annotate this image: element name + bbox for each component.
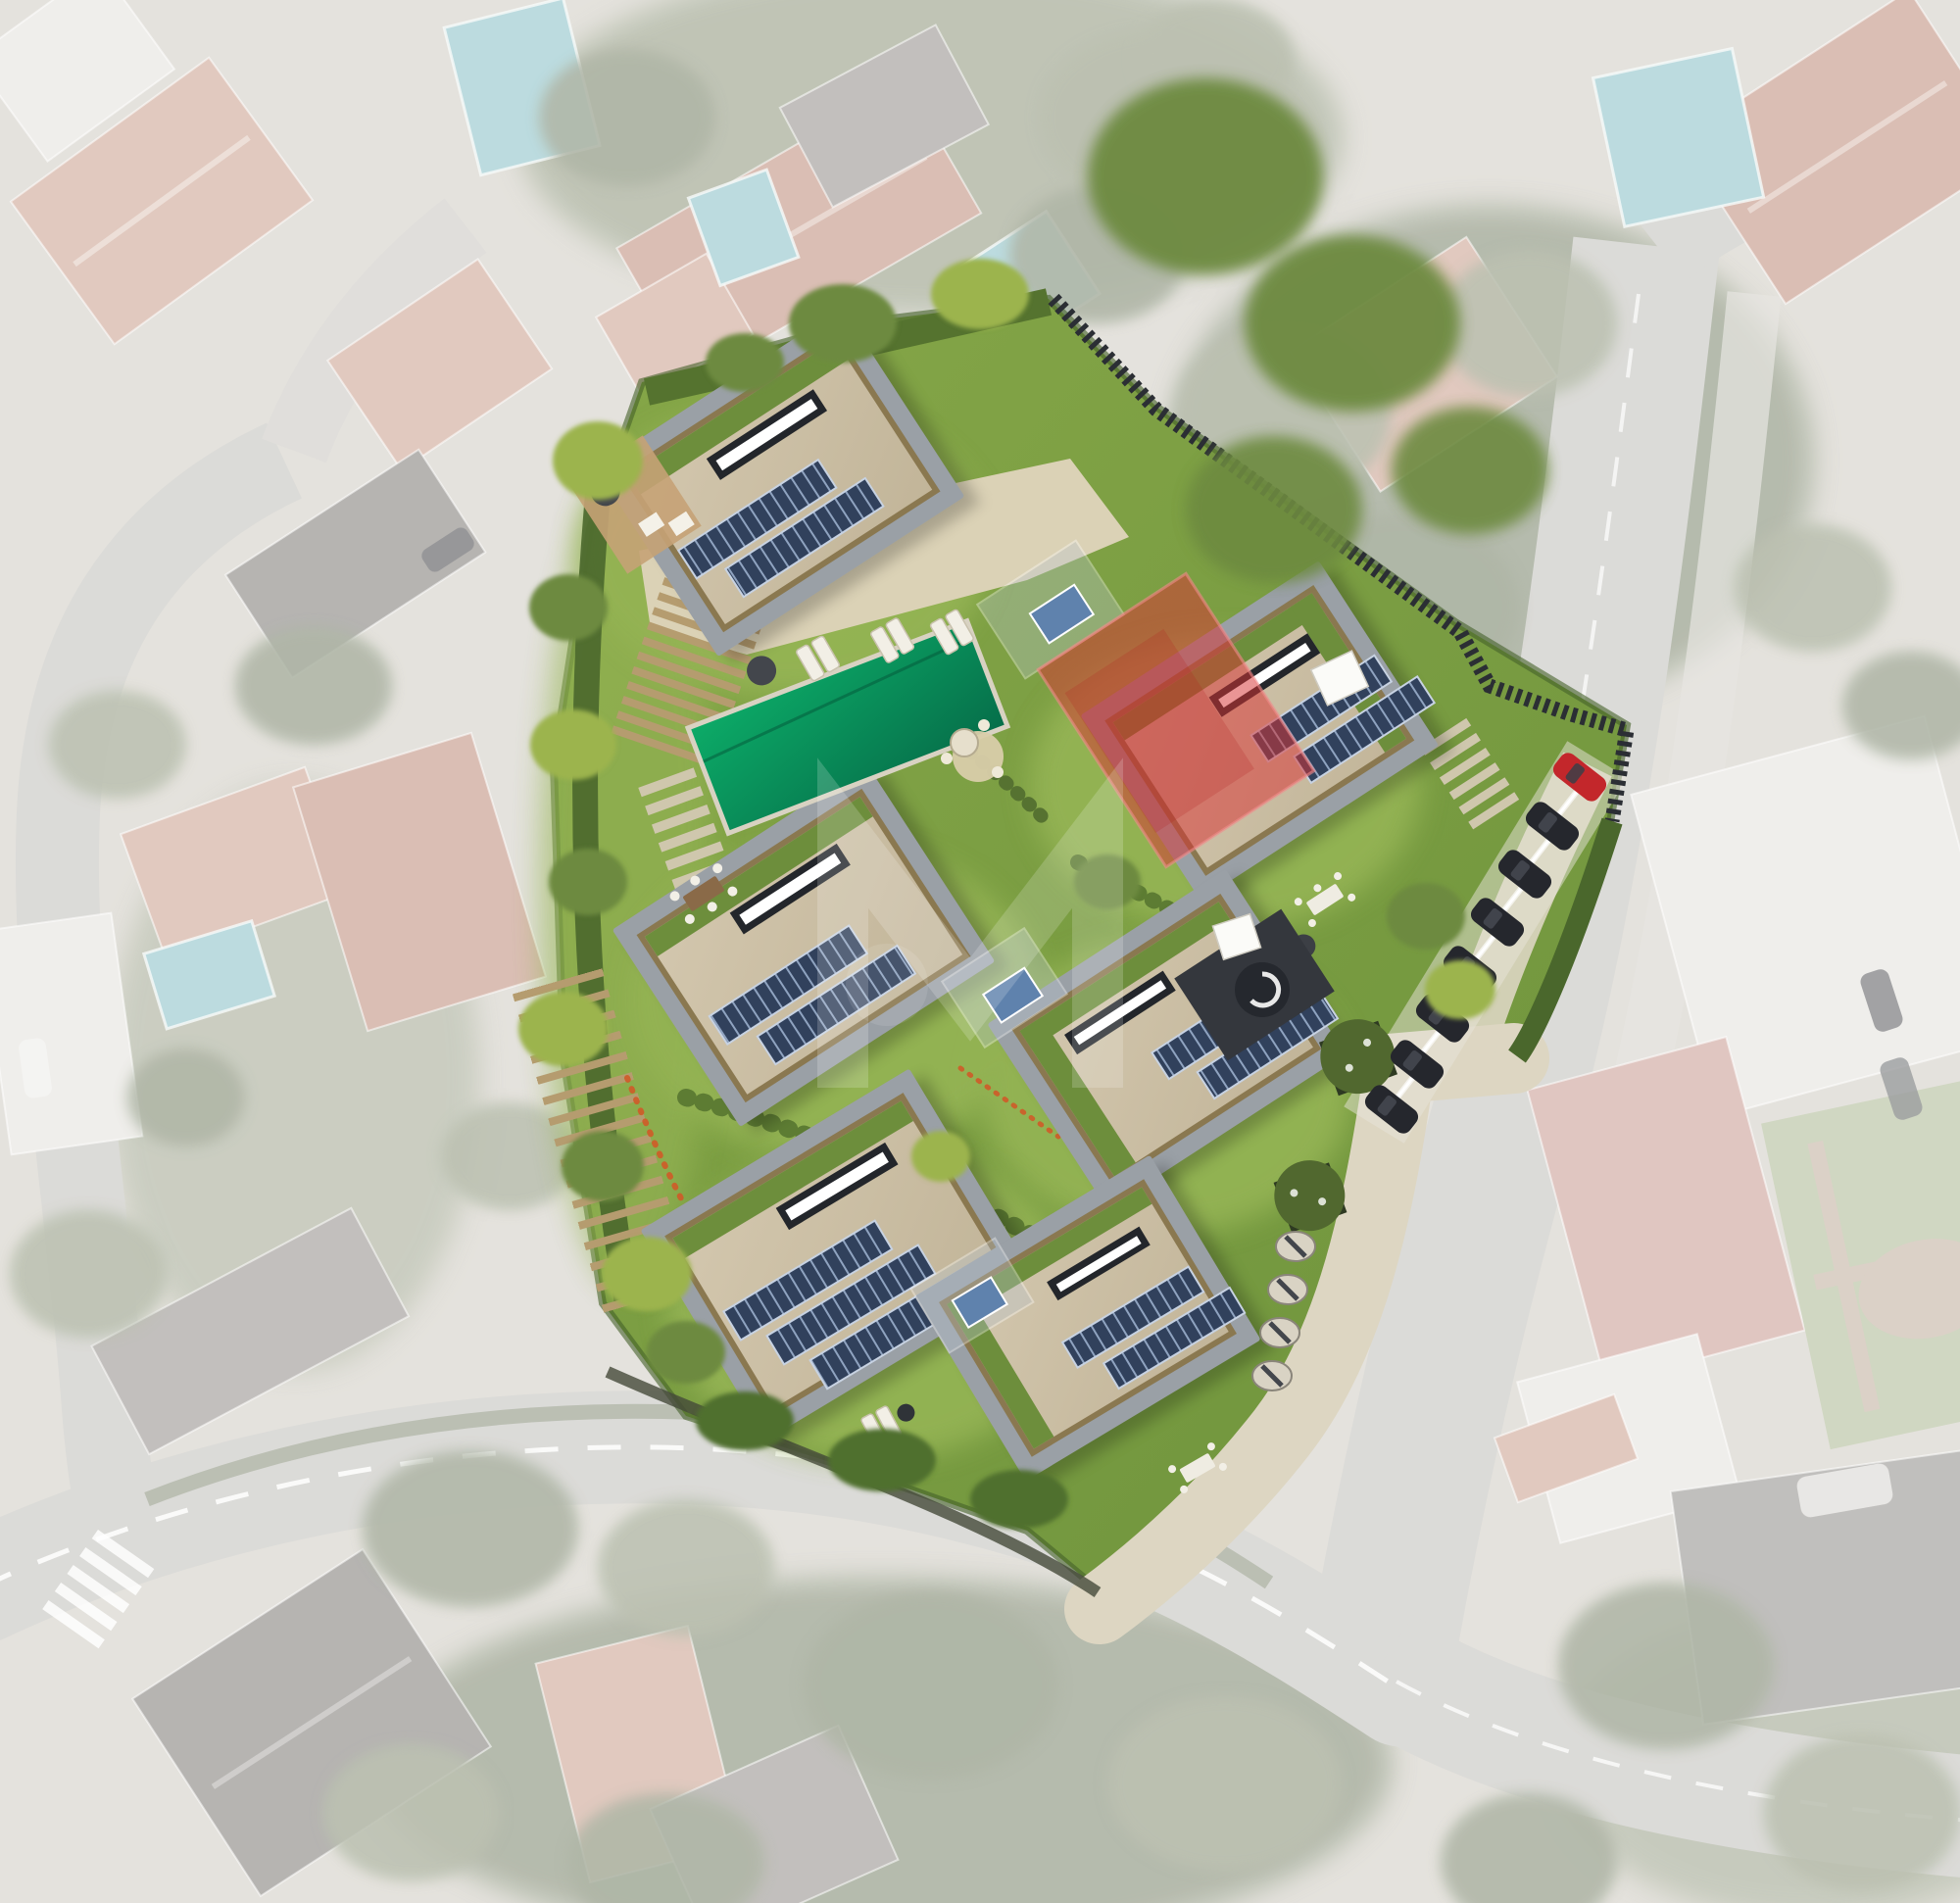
spiral-staircase[interactable] (1235, 962, 1290, 1017)
aerial-site-plan (0, 0, 1960, 1903)
